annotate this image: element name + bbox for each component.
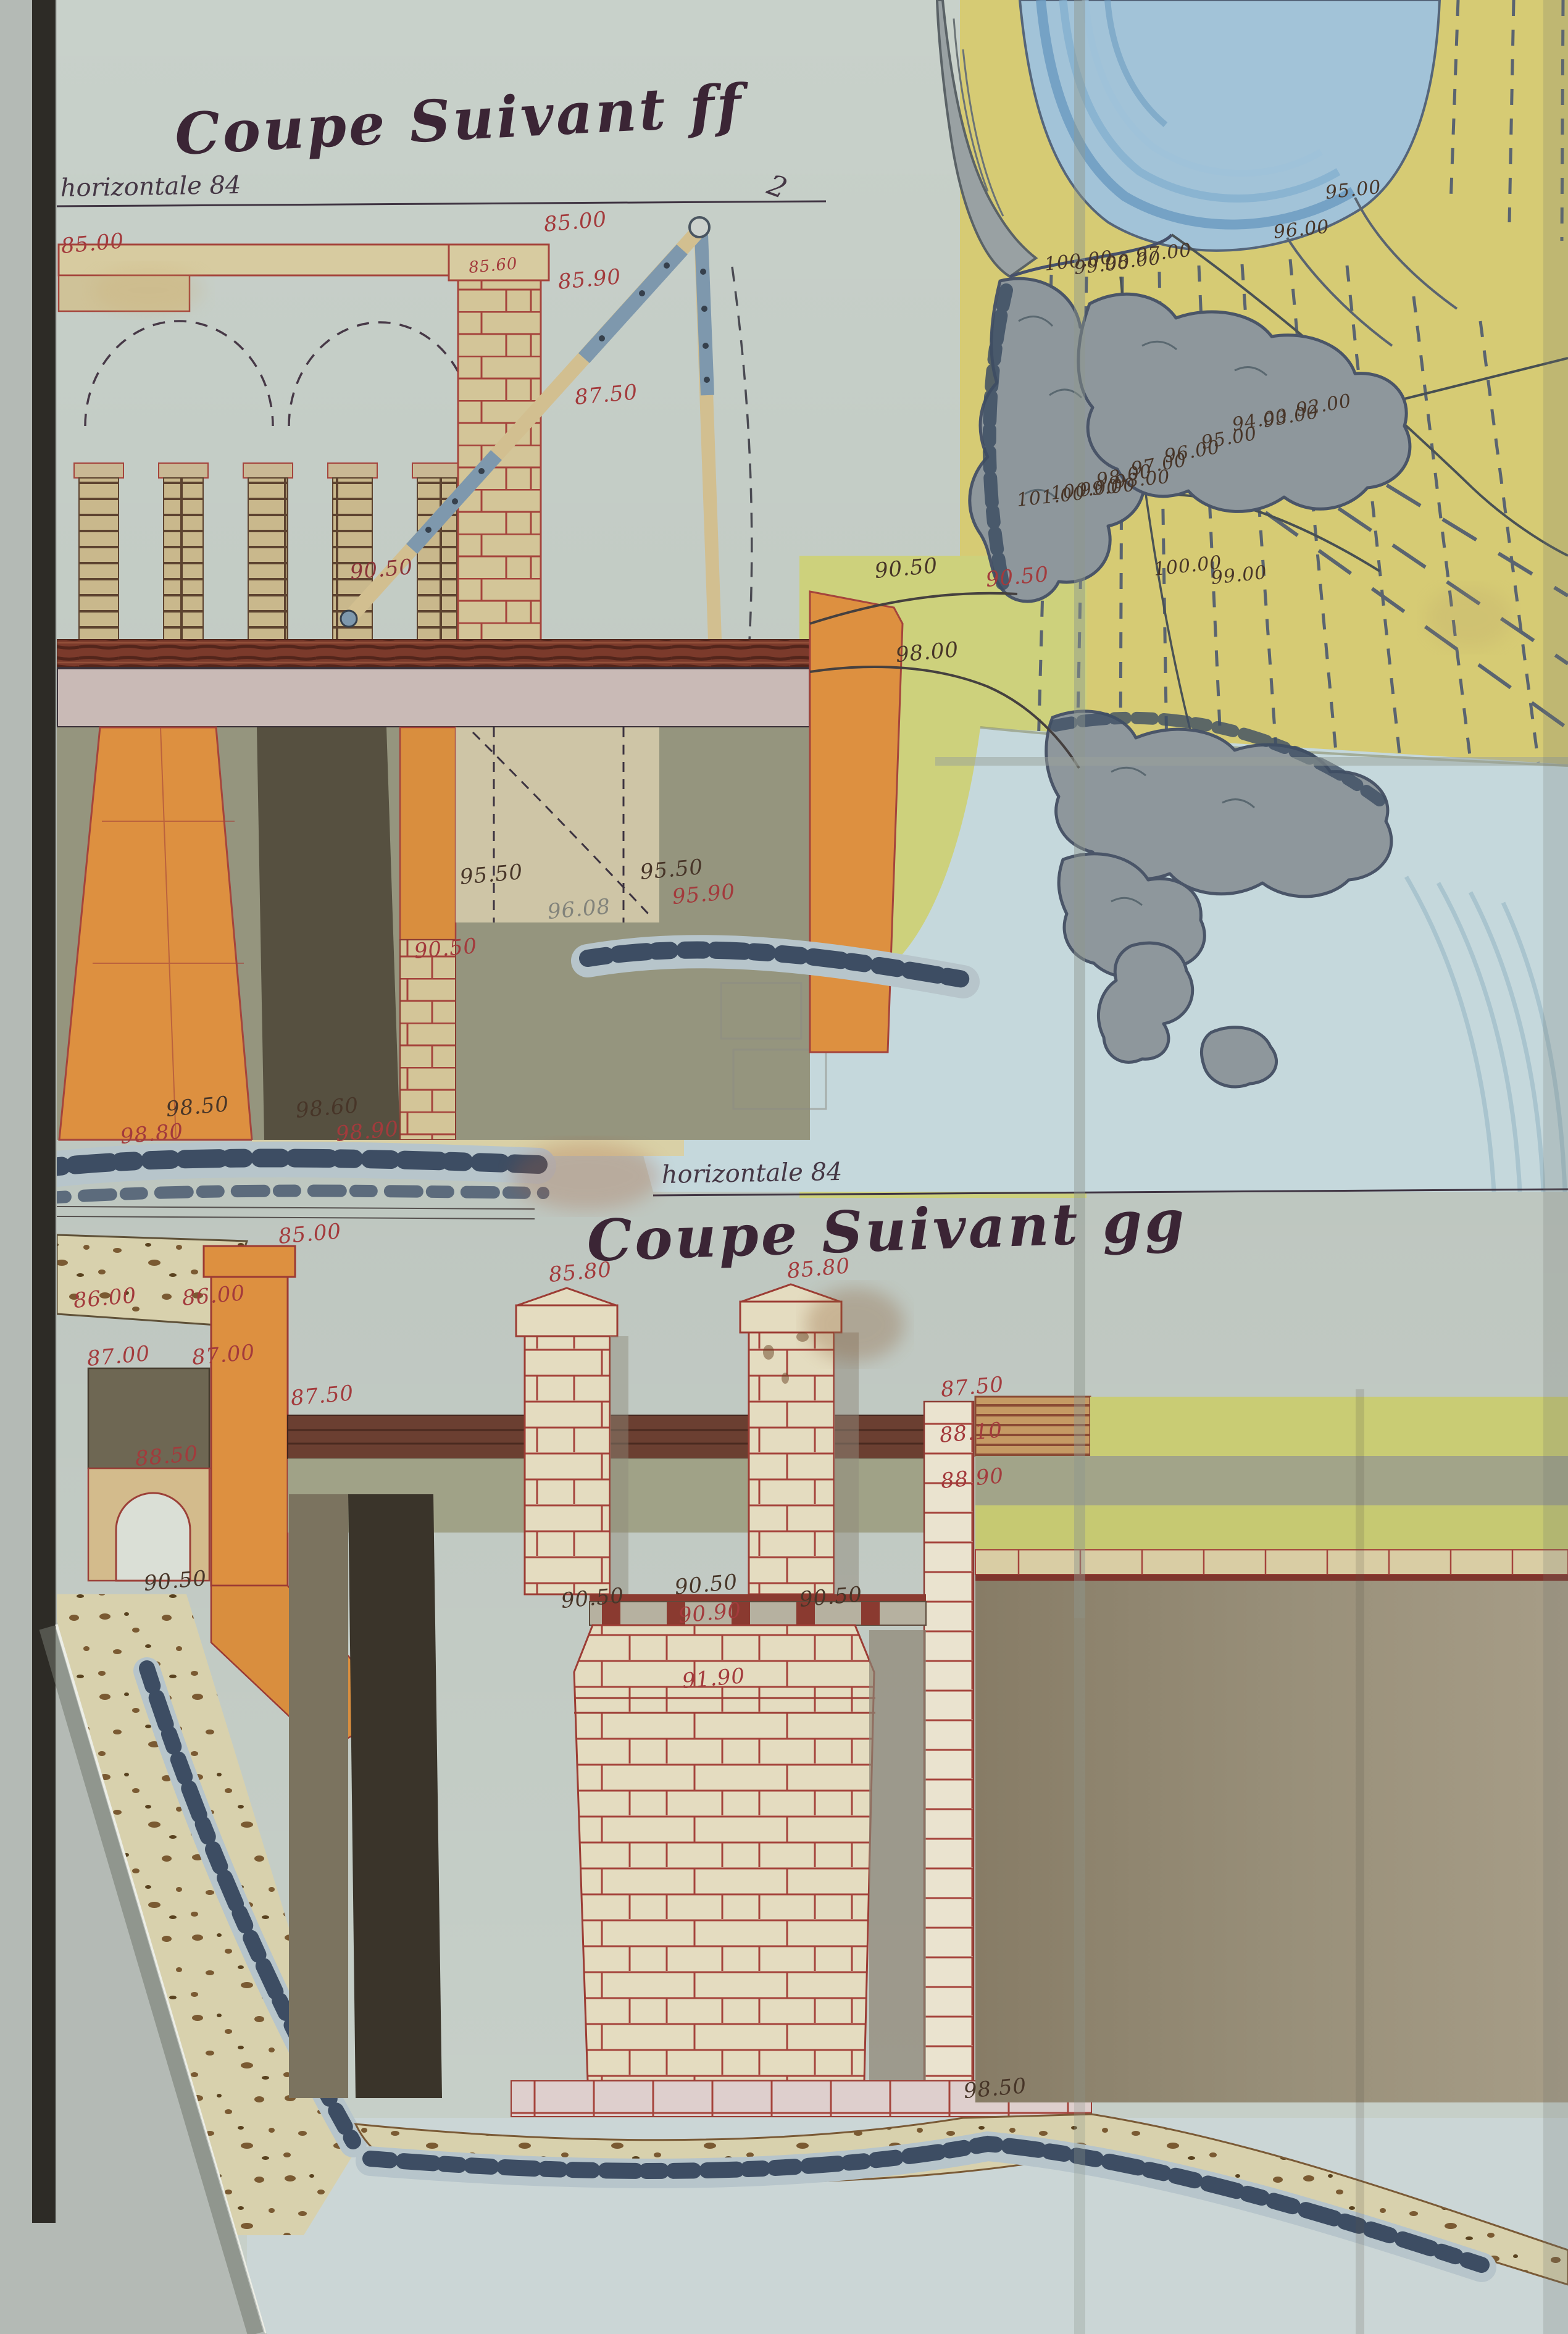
wood-beam-band <box>57 640 810 668</box>
scanned-plan-drawing: horizontale 84 Coupe Suivant ff 2 horizo… <box>0 0 1568 2334</box>
sheet-fold-edge <box>32 0 56 2223</box>
culvert-arch <box>116 1493 190 1581</box>
right-chamber-wall <box>924 1402 974 2081</box>
dark-gate-wall <box>348 1494 442 2098</box>
horizontal-crease <box>935 757 1568 766</box>
crane-pivot <box>690 217 709 237</box>
dark-wall <box>257 727 400 1140</box>
vertical-crease <box>1074 0 1085 1618</box>
datum-label-ff: horizontale 84 <box>60 171 241 203</box>
datum-label-gg: horizontale 84 <box>661 1158 842 1189</box>
slab-band <box>57 668 810 727</box>
masonry-pier-left <box>516 1288 628 1594</box>
left-wall-orange <box>211 1277 288 1586</box>
strata-bands <box>975 1397 1568 2102</box>
central-abutment <box>574 1625 874 2081</box>
